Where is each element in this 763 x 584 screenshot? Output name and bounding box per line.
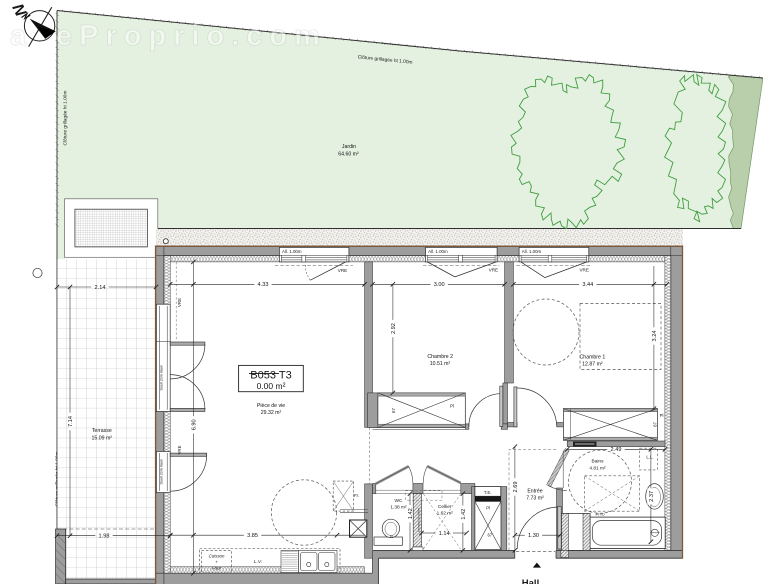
svg-text:L.V.: L.V. (254, 559, 262, 565)
svg-text:Chambre 1: Chambre 1 (580, 355, 606, 361)
svg-text:1.30: 1.30 (528, 533, 539, 539)
svg-text:2.92: 2.92 (391, 323, 397, 334)
svg-text:carreaux de plâtre: carreaux de plâtre (417, 508, 421, 533)
svg-text:Cellier: Cellier (438, 504, 452, 510)
svg-text:Pièce de vie: Pièce de vie (257, 403, 285, 409)
svg-text:+: + (215, 560, 218, 565)
svg-text:4.33: 4.33 (258, 282, 269, 288)
svg-text:All. 1.00m: All. 1.00m (282, 249, 302, 254)
svg-text:1.62 m²: 1.62 m² (437, 511, 454, 517)
svg-text:1.42: 1.42 (408, 508, 414, 519)
svg-text:WC: WC (395, 498, 404, 504)
svg-text:Hall: Hall (522, 578, 539, 584)
svg-text:6.90: 6.90 (191, 419, 197, 430)
svg-text:Fr.: Fr. (354, 493, 359, 498)
svg-text:Entrée: Entrée (527, 489, 542, 495)
svg-text:67: 67 (653, 422, 658, 427)
svg-text:VRE: VRE (579, 267, 588, 272)
svg-text:T.E.: T.E. (484, 490, 492, 495)
svg-text:10.51 m²: 10.51 m² (430, 361, 451, 367)
svg-text:1.14: 1.14 (439, 531, 450, 537)
svg-text:2.49: 2.49 (611, 447, 622, 453)
svg-text:Pl: Pl (450, 404, 454, 409)
svg-text:1.42: 1.42 (461, 509, 467, 520)
svg-text:Seuil 2cm maxi: Seuil 2cm maxi (160, 365, 164, 390)
svg-text:L.L.: L.L. (646, 455, 653, 460)
svg-text:3.24: 3.24 (652, 331, 658, 342)
svg-text:Chambre 2: Chambre 2 (427, 354, 453, 360)
svg-text:Four: Four (212, 566, 222, 571)
svg-text:Clôture grillagée ht 1.00m: Clôture grillagée ht 1.00m (63, 91, 69, 146)
svg-text:Seuil 2cm maxi: Seuil 2cm maxi (160, 459, 164, 484)
svg-text:1.98: 1.98 (99, 534, 110, 540)
svg-text:All. 1.00m: All. 1.00m (522, 249, 542, 254)
svg-text:Pl: Pl (486, 506, 490, 511)
svg-text:a: a (10, 20, 33, 52)
svg-text:Cuisson: Cuisson (209, 554, 225, 559)
svg-text:40 I/D: 40 I/D (596, 512, 606, 516)
svg-text:VRE: VRE (489, 267, 498, 272)
svg-text:91: 91 (390, 535, 394, 539)
svg-text:Terrasse: Terrasse (92, 428, 112, 434)
svg-text:B053 T3: B053 T3 (250, 370, 291, 382)
svg-text:Bains: Bains (592, 459, 605, 465)
svg-text:15.09 m²: 15.09 m² (92, 436, 113, 442)
svg-text:VRE: VRE (177, 298, 182, 307)
svg-text:7.73 m²: 7.73 m² (526, 496, 544, 502)
svg-text:7.14: 7.14 (68, 416, 74, 427)
svg-text:3.85: 3.85 (247, 533, 258, 539)
svg-text:0.00 m²: 0.00 m² (257, 381, 286, 391)
svg-text:eProprio.com: eProprio.com (56, 20, 327, 52)
svg-text:12.87 m²: 12.87 m² (582, 362, 603, 368)
svg-text:2.69: 2.69 (513, 482, 519, 493)
svg-text:67: 67 (487, 533, 492, 538)
svg-text:2.14: 2.14 (95, 285, 106, 291)
svg-text:67: 67 (391, 408, 396, 414)
svg-text:All. 1.00m: All. 1.00m (428, 249, 448, 254)
svg-text:1.38 m²: 1.38 m² (390, 505, 407, 511)
svg-text:29.32 m²: 29.32 m² (261, 410, 282, 416)
svg-text:Jardin: Jardin (342, 144, 356, 150)
svg-text:3.00: 3.00 (434, 282, 445, 288)
svg-text:3.44: 3.44 (582, 282, 593, 288)
svg-text:Pl: Pl (660, 413, 664, 418)
svg-text:2.37: 2.37 (649, 491, 655, 502)
svg-text:64.60 m²: 64.60 m² (338, 152, 359, 158)
svg-text:4.81 m²: 4.81 m² (589, 465, 606, 471)
svg-text:VRE: VRE (177, 445, 182, 454)
svg-text:VRE: VRE (338, 268, 347, 273)
